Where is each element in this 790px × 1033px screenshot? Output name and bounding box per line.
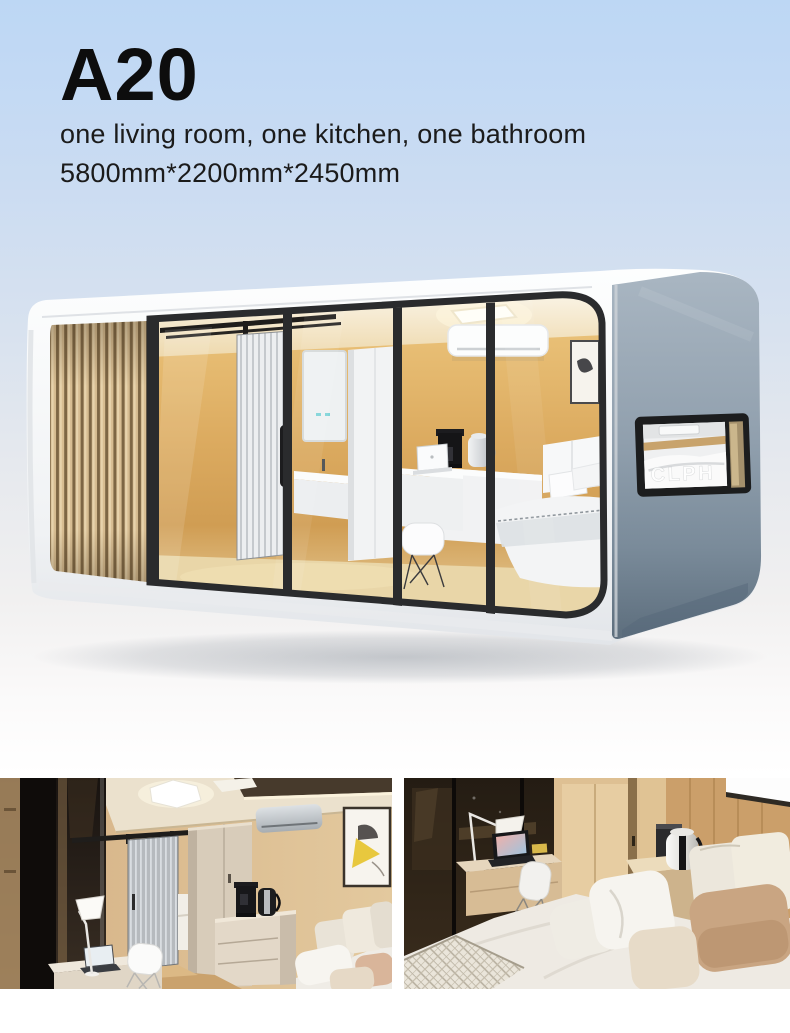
side-panel: CLPH (612, 272, 761, 639)
air-conditioner (255, 804, 323, 834)
product-page: A20 one living room, one kitchen, one ba… (0, 0, 790, 1033)
interior-bedroom-illustration (404, 778, 790, 989)
capsule-house-illustration: CLPH (0, 255, 790, 695)
wall-art-frame (344, 808, 390, 886)
wall-art-frame (571, 341, 599, 403)
product-dimensions: 5800mm*2200mm*2450mm (60, 157, 586, 190)
laptop (413, 444, 452, 475)
wood-slat-panel (50, 321, 147, 582)
hero-capsule-render: CLPH (0, 255, 790, 695)
product-layout-description: one living room, one kitchen, one bathro… (60, 118, 586, 151)
side-window: CLPH (635, 413, 752, 497)
side-window-letters: CLPH (650, 462, 715, 486)
cabin-ground-shadow (32, 630, 768, 684)
gallery-photo-bedroom (404, 778, 790, 989)
product-header: A20 one living room, one kitchen, one ba… (60, 38, 586, 190)
coffee-maker (234, 882, 258, 917)
interior-living-illustration (0, 778, 392, 989)
product-model: A20 (60, 38, 586, 112)
glass-front (150, 293, 604, 617)
gallery-photo-living (0, 778, 392, 989)
wardrobe-cabinet (348, 346, 398, 561)
